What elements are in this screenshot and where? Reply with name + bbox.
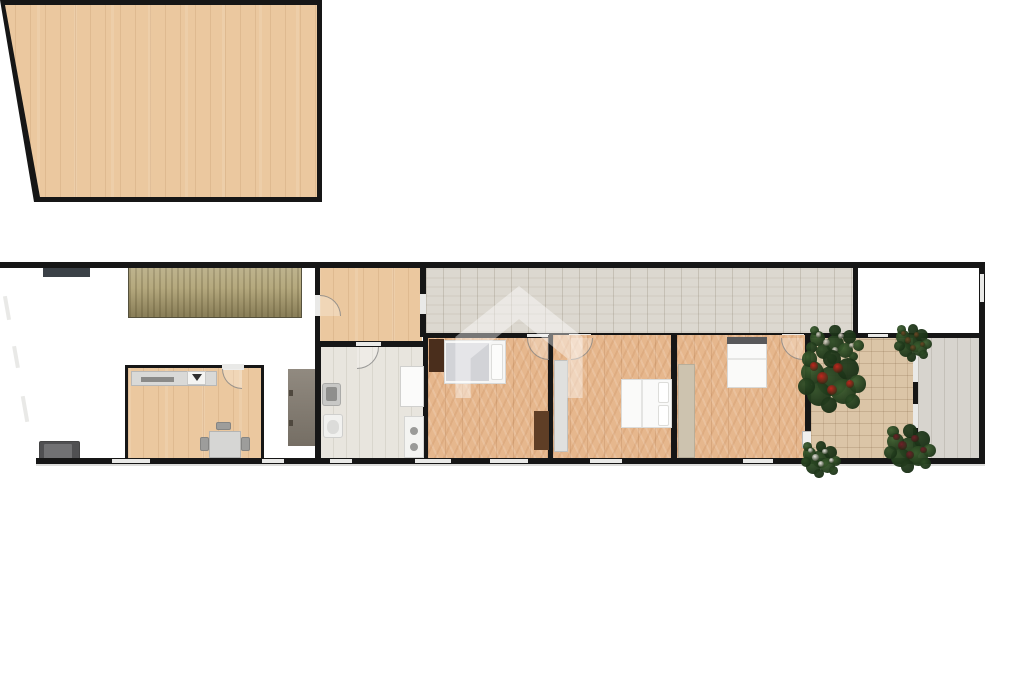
plant: [800, 352, 864, 410]
plant: [886, 426, 934, 470]
plant: [896, 325, 930, 360]
floor-plan-image: [0, 0, 1024, 683]
watermark-house-icon: [455, 286, 583, 398]
plant: [802, 442, 840, 476]
